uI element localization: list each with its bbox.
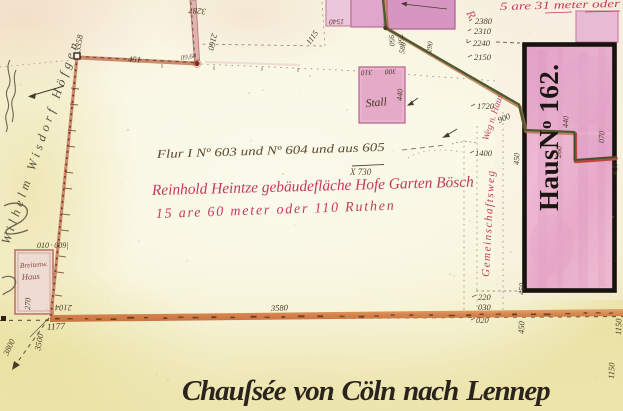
svg-text:070: 070	[597, 131, 606, 143]
svg-text:2240: 2240	[473, 38, 491, 48]
svg-text:300: 300	[384, 67, 397, 76]
svg-text:220: 220	[478, 292, 492, 302]
svg-text:1720: 1720	[477, 101, 495, 111]
svg-text:030: 030	[478, 302, 492, 312]
svg-text:270: 270	[23, 298, 33, 310]
svg-text:1177: 1177	[47, 322, 67, 333]
svg-text:HausNo 162.: HausNo 162.	[534, 63, 564, 211]
svg-text:451: 451	[128, 54, 141, 64]
svg-text:310: 310	[360, 68, 373, 77]
svg-text:1150: 1150	[613, 318, 623, 335]
svg-text:2380: 2380	[475, 16, 493, 26]
svg-text:Stall: Stall	[365, 96, 387, 110]
svg-text:1400: 1400	[475, 148, 493, 158]
svg-text:3580: 3580	[270, 302, 289, 313]
svg-text:1150: 1150	[606, 362, 617, 379]
svg-text:420: 420	[610, 163, 619, 175]
svg-text:2150: 2150	[474, 52, 492, 62]
svg-text:2310: 2310	[474, 26, 492, 36]
svg-text:010 · 009|: 010 · 009|	[37, 241, 68, 250]
svg-text:450: 450	[516, 320, 526, 334]
svg-text:950: 950	[387, 35, 397, 47]
svg-text:2104: 2104	[54, 303, 72, 313]
svg-text:Haus: Haus	[20, 271, 40, 282]
svg-text:Chauſsée von Cöln nach Lennep: Chauſsée von Cöln nach Lennep	[182, 375, 551, 407]
svg-text:450: 450	[512, 153, 521, 165]
svg-text:450: 450	[517, 283, 526, 295]
svg-text:1540: 1540	[329, 17, 345, 27]
svg-text:020: 020	[476, 315, 490, 325]
svg-text:260: 260	[554, 146, 563, 158]
svg-text:440: 440	[395, 89, 405, 102]
svg-text:440: 440	[561, 116, 570, 128]
svg-text:3287: 3287	[188, 5, 208, 17]
